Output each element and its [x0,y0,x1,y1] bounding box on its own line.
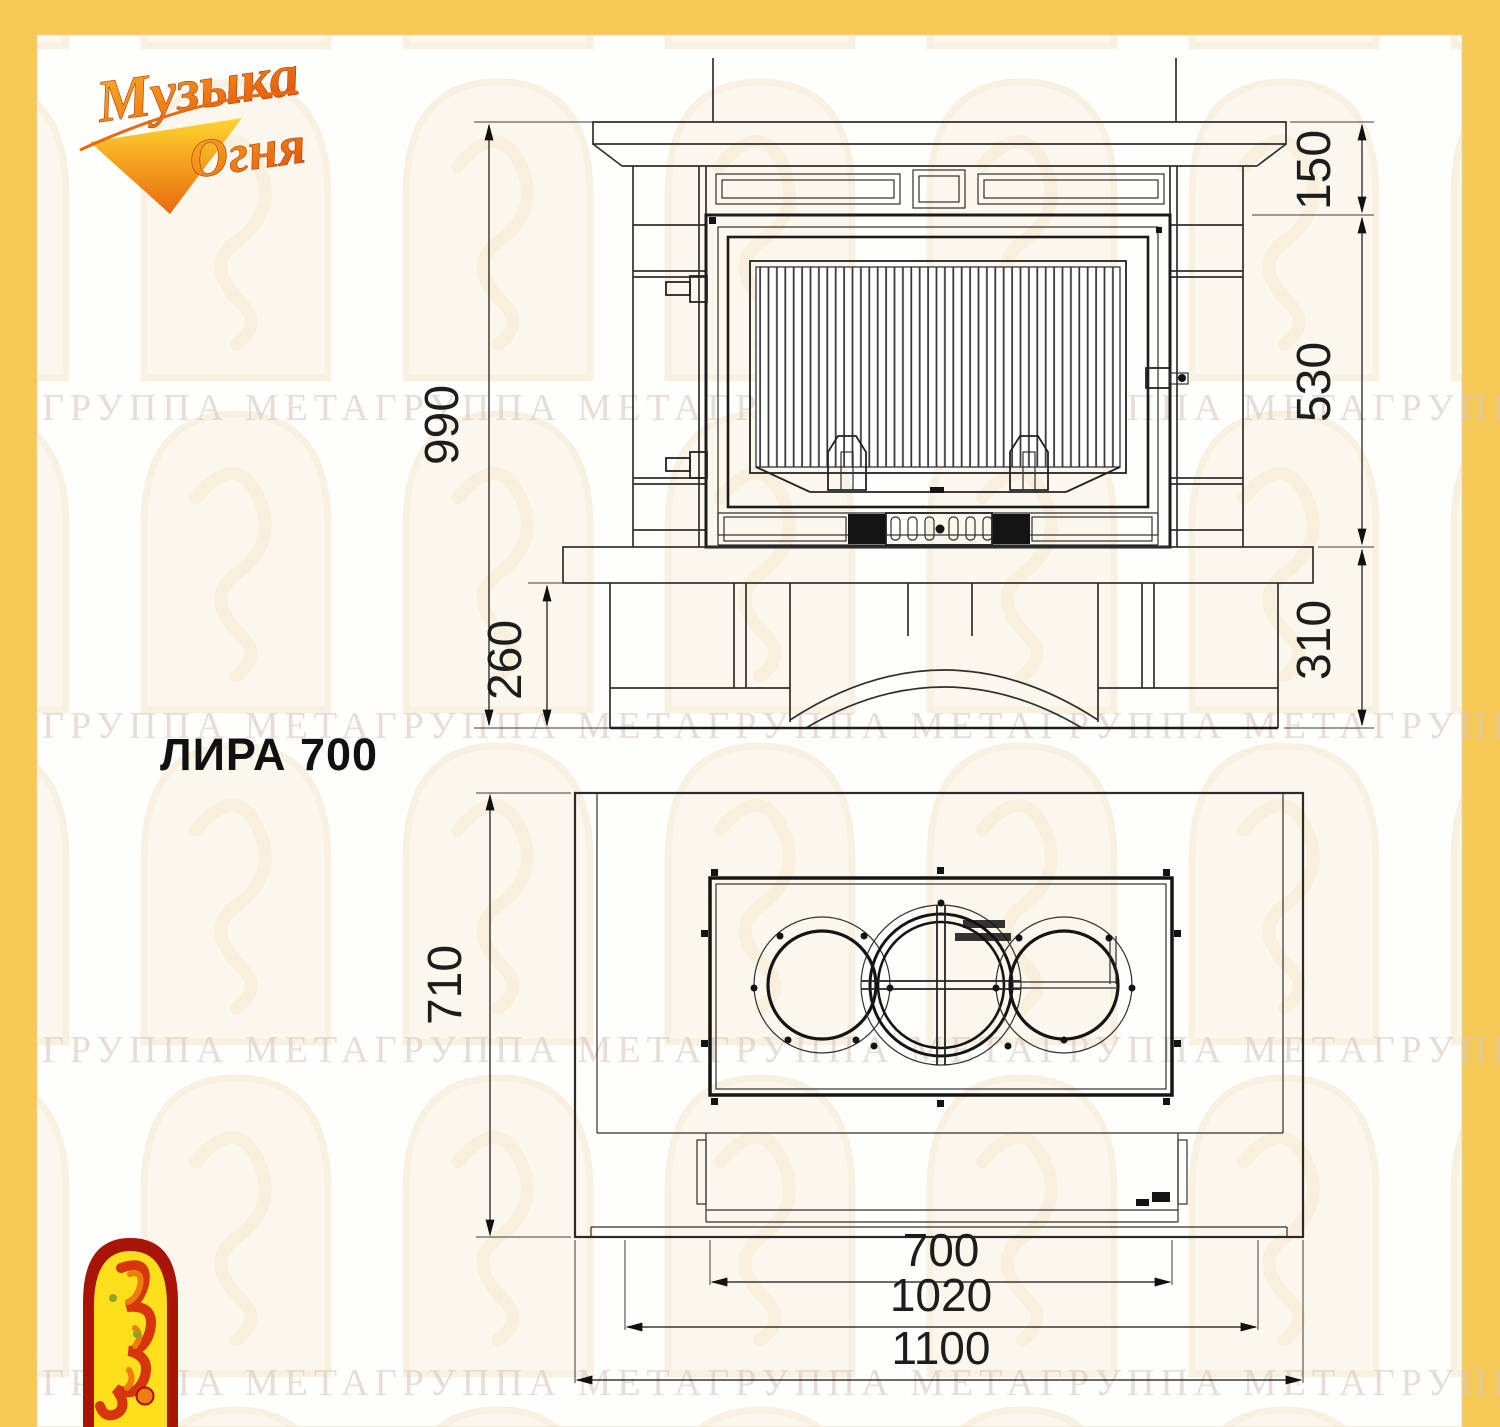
dim-plinth-height: 260 [479,620,532,700]
meta-arch-logo-icon [83,1238,178,1427]
dim-total-width: 1100 [892,1322,991,1374]
dim-mantel-height: 150 [1288,130,1341,210]
watermark-row: ГРУППА МЕТАГРУППА МЕТАГРУППА МЕТАГРУППА … [42,1029,1500,1071]
dim-base-height: 310 [1288,600,1341,680]
door-grill-ribs [756,267,1120,467]
tiny-label-mark [955,933,1011,941]
technical-drawing-canvas: ГРУППА МЕТАГРУППА МЕТАГРУППА МЕТАГРУППА … [0,0,1500,1427]
dim-total-height: 990 [416,385,469,465]
page: ГРУППА МЕТАГРУППА МЕТАГРУППА МЕТАГРУППА … [0,0,1500,1427]
watermark-row: ГРУППА МЕТАГРУППА МЕТАГРУППА МЕТАГРУППА … [42,1362,1500,1404]
model-title: ЛИРА 700 [160,729,378,780]
dim-firebox-height: 530 [1288,342,1341,422]
dim-depth: 710 [419,945,472,1025]
tiny-label-mark [963,920,1005,928]
dim-portal-width: 1020 [890,1269,992,1321]
